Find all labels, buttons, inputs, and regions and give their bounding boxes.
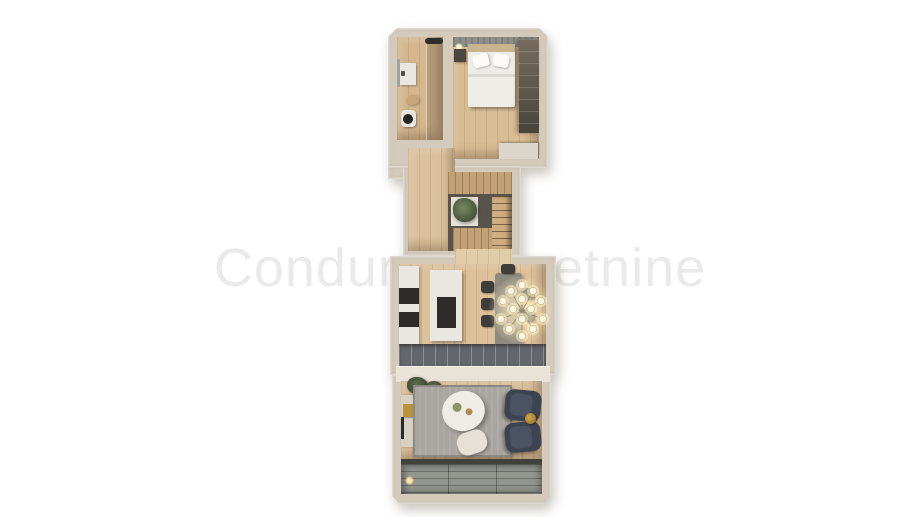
dresser: [499, 143, 538, 159]
oven: [399, 288, 419, 304]
pillow: [472, 52, 491, 68]
glass-partition: [399, 344, 546, 366]
toilet-lid: [403, 114, 413, 124]
toilet: [401, 110, 416, 127]
blanket-fold: [468, 74, 515, 77]
gold-side-table: [525, 413, 536, 424]
bathroom-stool: [406, 95, 419, 105]
stairwell: [448, 172, 512, 251]
living-room: [401, 381, 542, 460]
double-bed: [468, 44, 515, 107]
nightstand-left: [454, 49, 466, 62]
deck-seam: [496, 464, 497, 494]
armchair: [504, 388, 543, 422]
bedroom: [453, 37, 539, 159]
faucet: [401, 71, 405, 76]
shower-area: [426, 37, 443, 140]
wood-panel-wall: [448, 172, 512, 194]
terrace-deck: [401, 464, 542, 494]
terrace-lamp: [405, 476, 414, 485]
potted-plant: [453, 198, 477, 222]
towel-rail: [425, 38, 443, 44]
washbasin: [400, 63, 416, 85]
cooktop: [437, 297, 456, 328]
kitchen-dining-room: [399, 264, 546, 366]
chandelier: [493, 278, 551, 342]
tv-screen: [401, 417, 404, 439]
pillow: [492, 53, 510, 69]
dining-chair: [501, 264, 515, 274]
floor-plan-render: Condura nekretnine: [0, 0, 920, 517]
staircase: [492, 196, 512, 251]
table-decor: [451, 402, 462, 413]
floor-plan: [0, 0, 920, 517]
table-decor: [465, 407, 474, 416]
wardrobe: [519, 39, 539, 133]
armchair: [504, 420, 542, 453]
kitchen-island: [430, 270, 462, 341]
armchair-cushion: [509, 425, 533, 449]
stair-railing: [453, 228, 493, 251]
deck-seam: [448, 464, 449, 494]
bathroom: [397, 37, 443, 140]
sink-appliance: [399, 312, 419, 327]
bed-headboard: [468, 44, 515, 52]
kitchen-counter: [399, 266, 419, 346]
